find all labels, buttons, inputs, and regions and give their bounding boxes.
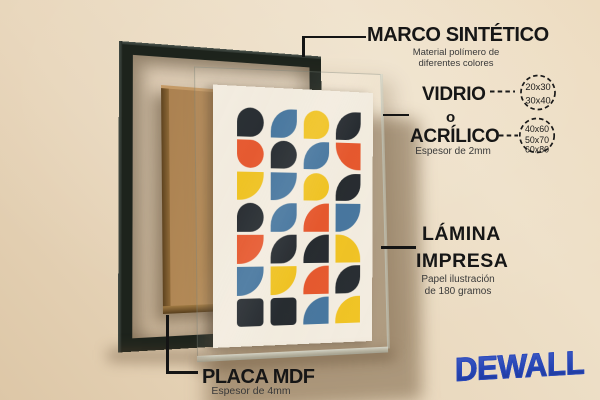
svg-text:60x80: 60x80 [525, 145, 549, 155]
svg-text:50x70: 50x70 [525, 135, 549, 145]
svg-text:30x40: 30x40 [525, 96, 550, 106]
svg-text:20x30: 20x30 [525, 82, 550, 92]
svg-text:40x60: 40x60 [525, 124, 549, 134]
